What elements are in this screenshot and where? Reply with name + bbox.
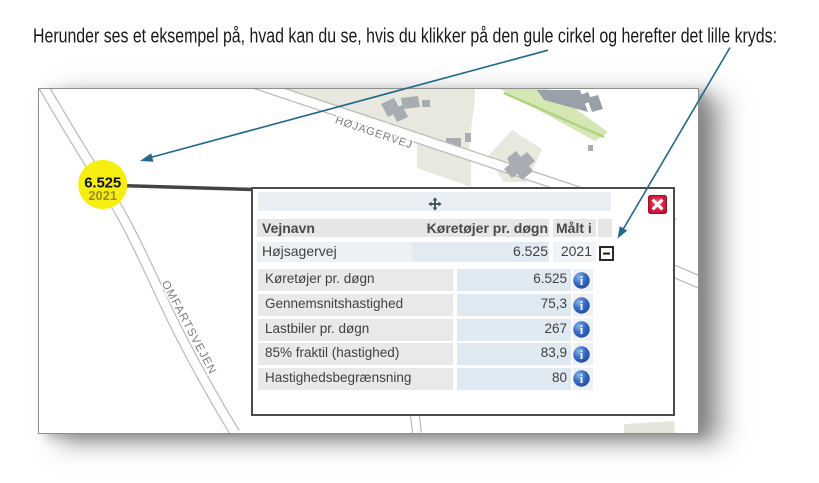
svg-text:2021: 2021 <box>88 189 117 203</box>
svg-text:i: i <box>580 348 584 362</box>
svg-text:i: i <box>580 323 584 337</box>
svg-text:i: i <box>580 372 584 386</box>
svg-text:i: i <box>580 299 584 313</box>
svg-text:i: i <box>580 274 584 288</box>
svg-text:Herunder ses et eksempel på, h: Herunder ses et eksempel på, hvad kan du… <box>33 26 777 48</box>
